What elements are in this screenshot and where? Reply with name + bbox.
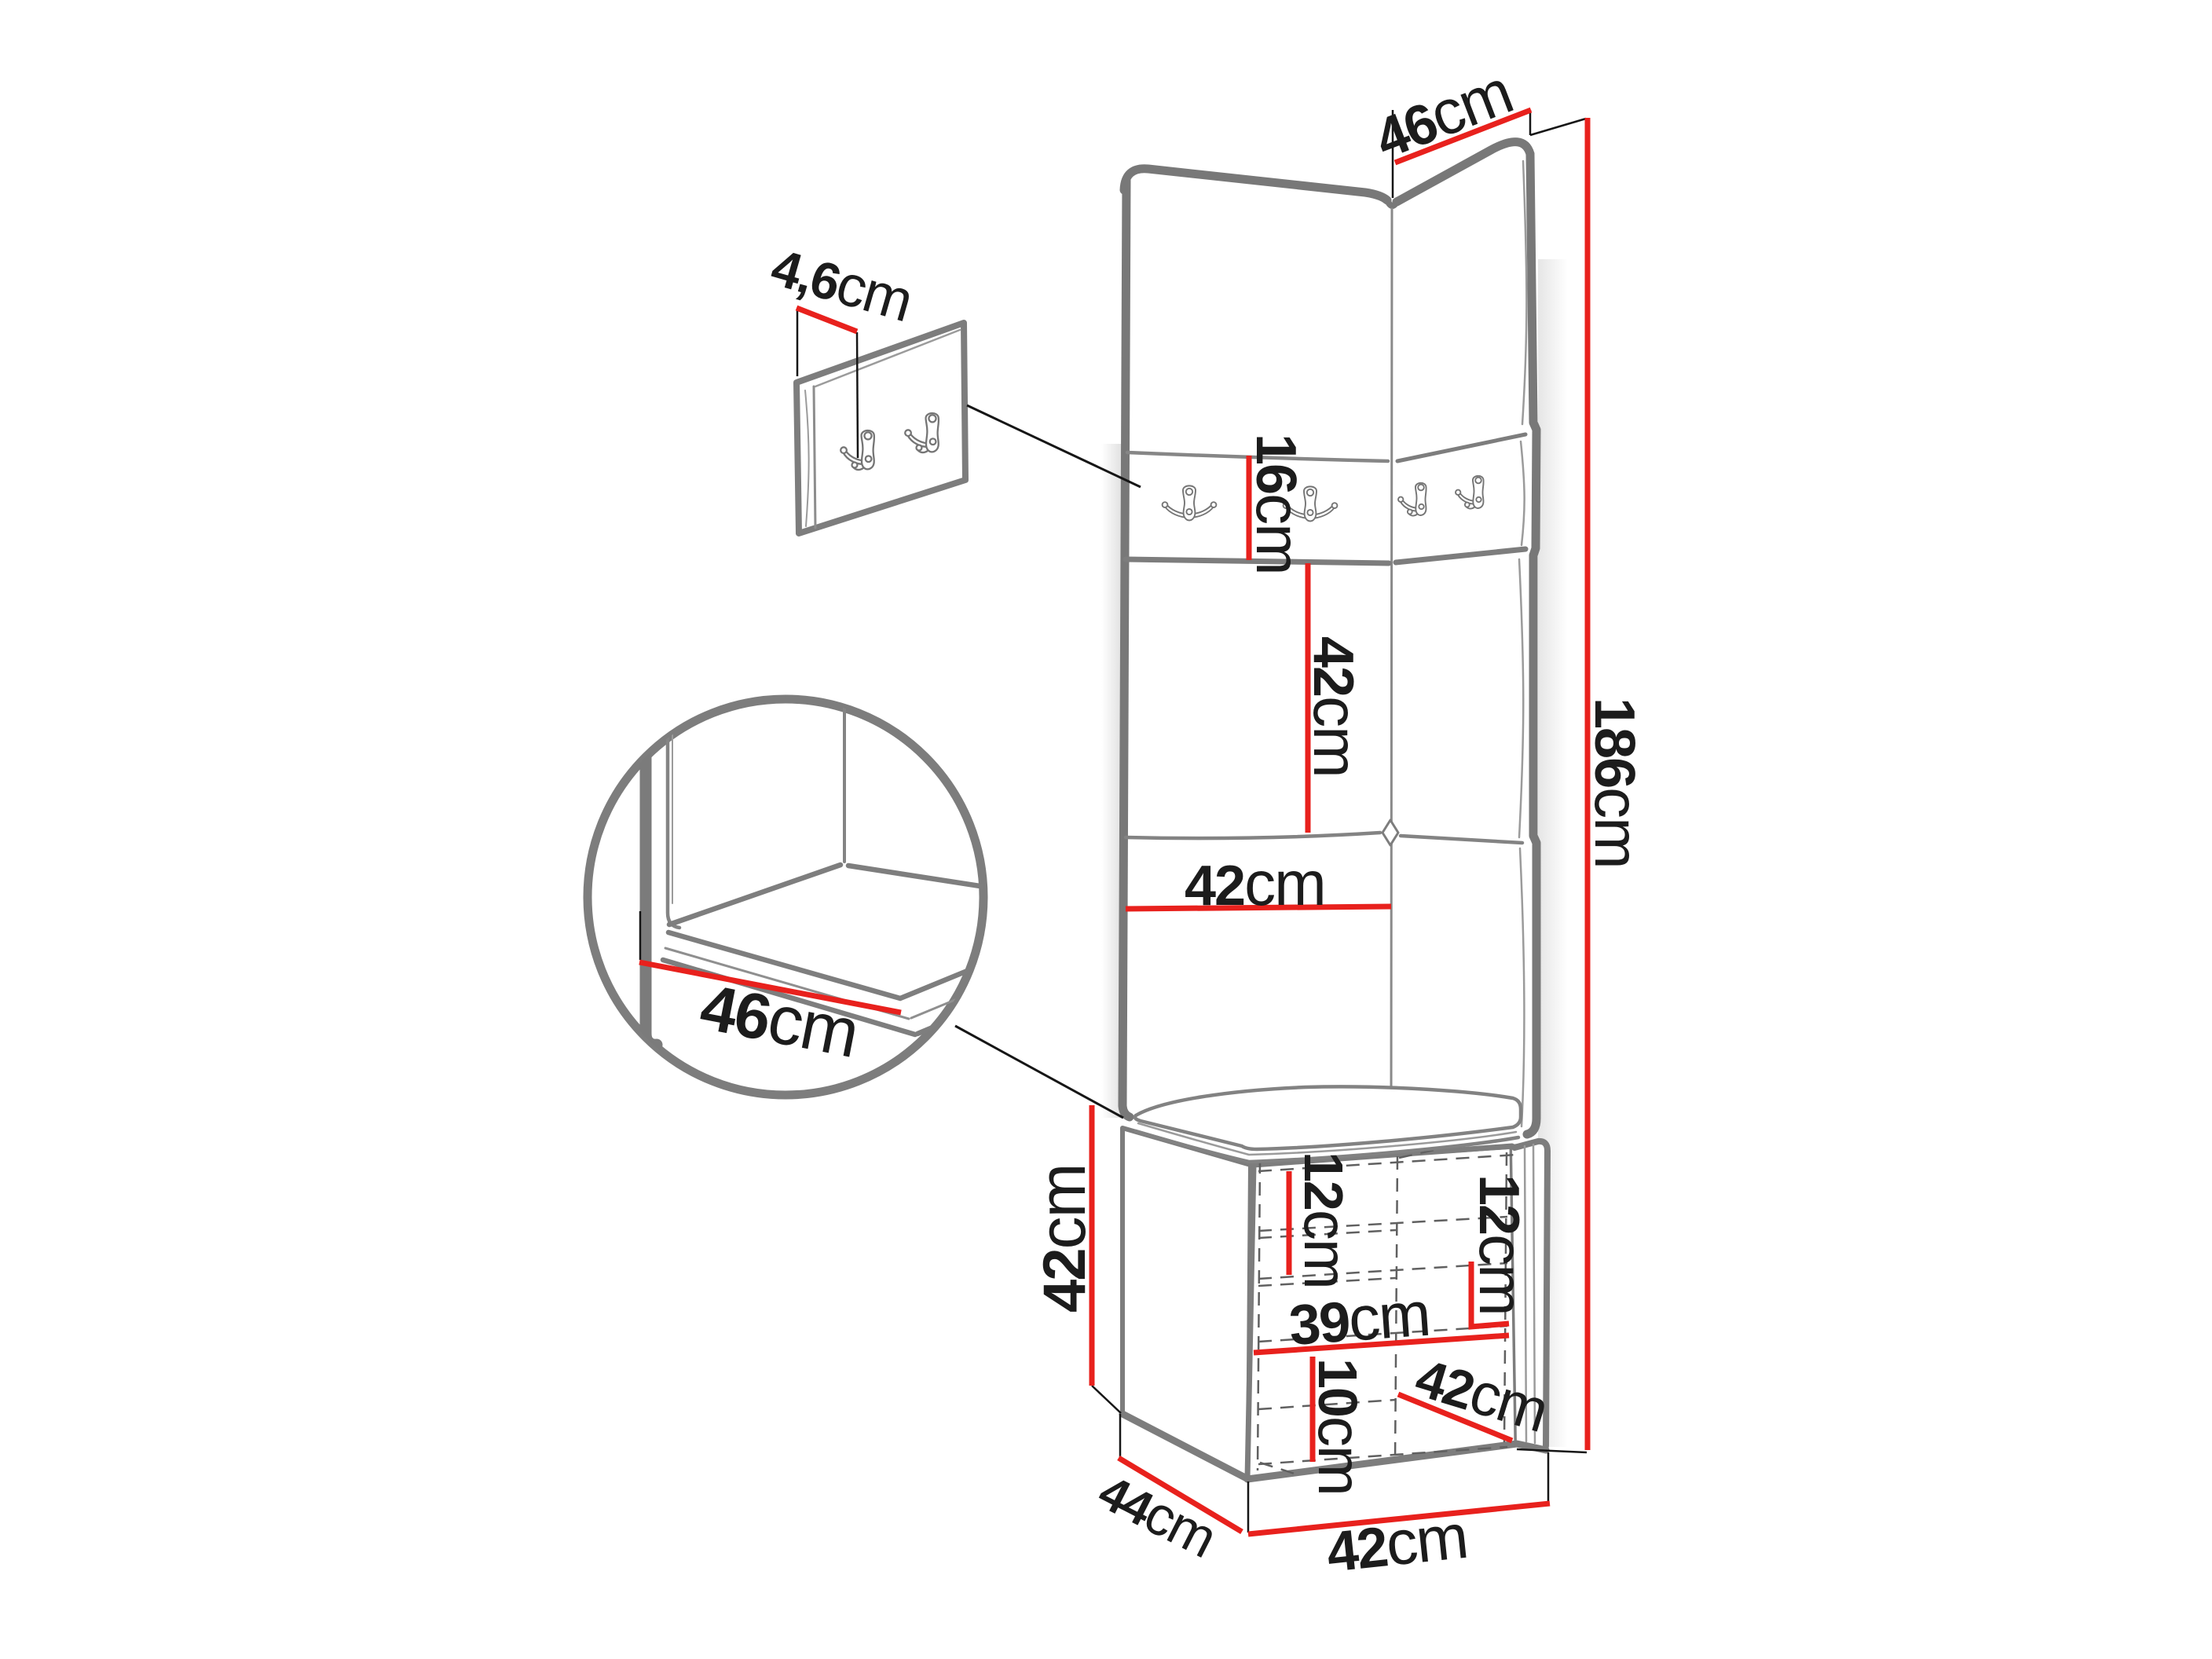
svg-text:42cm: 42cm [1025, 1164, 1099, 1313]
svg-text:186cm: 186cm [1582, 698, 1652, 868]
svg-text:10cm: 10cm [1306, 1358, 1375, 1495]
svg-text:16cm: 16cm [1243, 434, 1313, 574]
svg-text:42cm: 42cm [1185, 848, 1325, 918]
svg-text:12cm: 12cm [1291, 1152, 1361, 1288]
svg-text:12cm: 12cm [1467, 1174, 1536, 1315]
svg-text:42cm: 42cm [1301, 636, 1371, 777]
